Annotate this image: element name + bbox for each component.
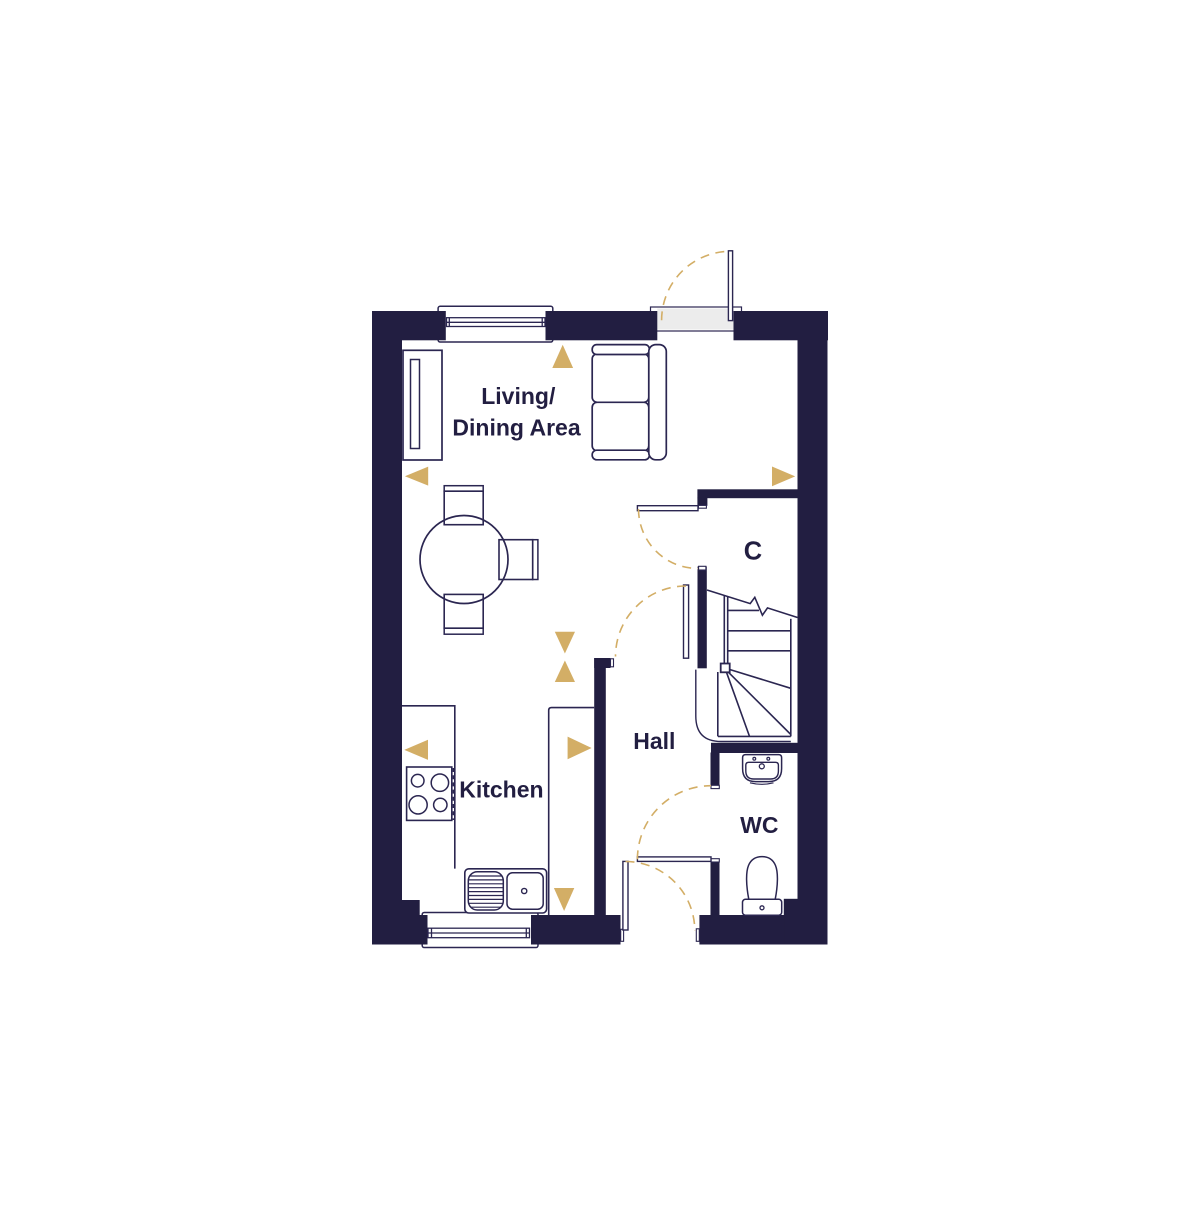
svg-text:WC: WC: [740, 812, 778, 838]
svg-text:Hall: Hall: [633, 728, 675, 754]
svg-text:Living/: Living/: [481, 383, 556, 409]
svg-text:C: C: [744, 538, 762, 566]
svg-text:Kitchen: Kitchen: [459, 777, 543, 803]
svg-text:Dining Area: Dining Area: [452, 414, 580, 440]
